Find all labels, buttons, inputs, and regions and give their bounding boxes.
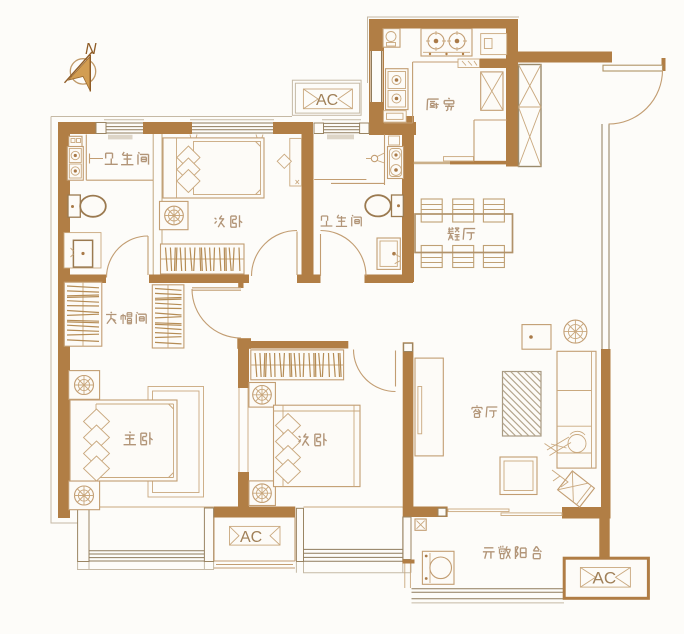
svg-text:N: N: [85, 41, 97, 58]
svg-text:AC: AC: [240, 529, 262, 546]
svg-text:AC: AC: [593, 569, 617, 588]
svg-text:AC: AC: [316, 92, 338, 109]
